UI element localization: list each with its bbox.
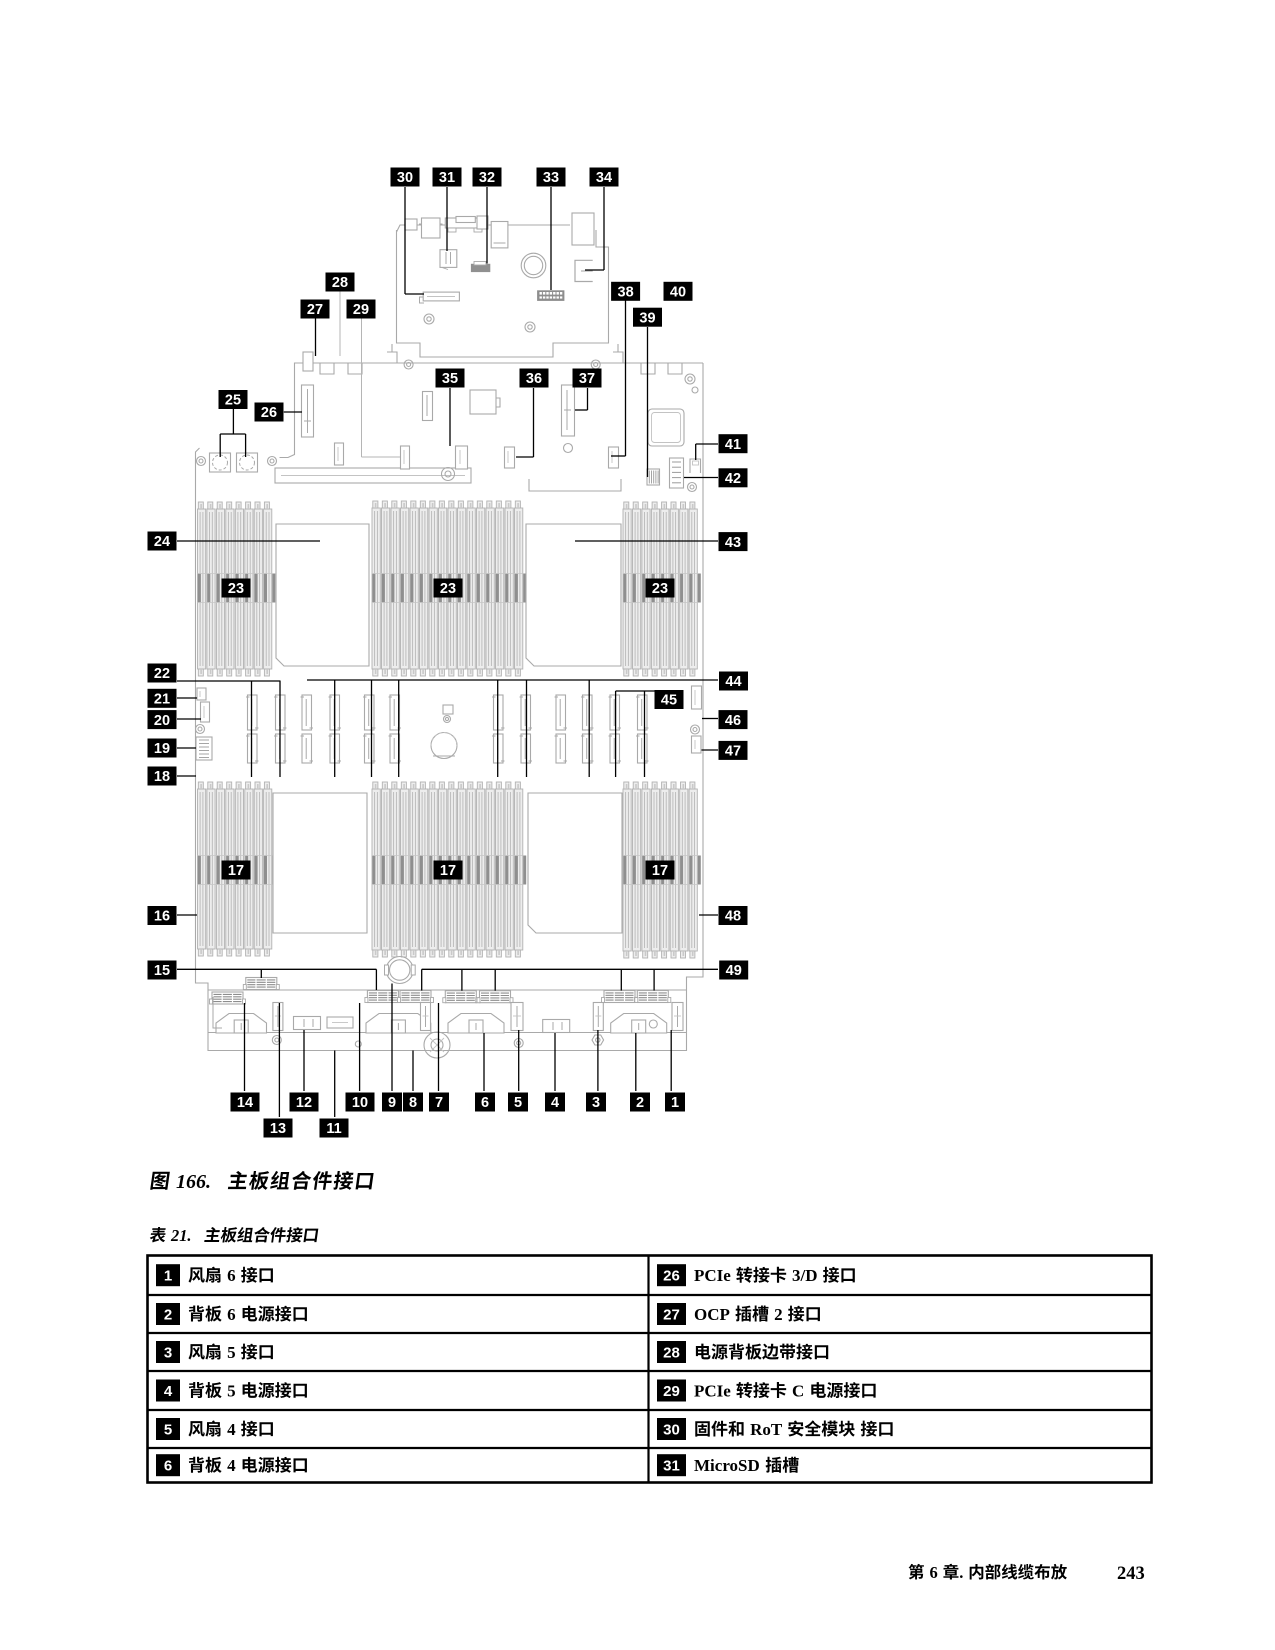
svg-text:4: 4 [227,1420,236,1439]
svg-text:2: 2 [636,1095,644,1111]
svg-text:42: 42 [725,471,741,487]
svg-text:23: 23 [652,581,668,597]
svg-text:1: 1 [671,1095,679,1111]
svg-text:PCIe: PCIe [694,1382,731,1401]
svg-text:4: 4 [227,1456,236,1475]
svg-text:6: 6 [164,1458,172,1475]
svg-text:OCP: OCP [694,1305,730,1324]
svg-text:24: 24 [154,534,170,550]
svg-text:5: 5 [514,1095,522,1111]
svg-text:3/D: 3/D [792,1266,818,1285]
svg-text:166.: 166. [176,1171,211,1193]
svg-text:10: 10 [352,1095,368,1111]
svg-text:49: 49 [726,963,742,979]
svg-text:21: 21 [154,692,170,708]
svg-text:39: 39 [639,310,655,326]
svg-text:6: 6 [930,1563,938,1582]
svg-text:6: 6 [227,1266,236,1285]
svg-text:243: 243 [1117,1564,1145,1584]
svg-text:16: 16 [154,909,170,925]
svg-text:27: 27 [663,1306,680,1323]
svg-text:6: 6 [481,1095,489,1111]
svg-text:37: 37 [579,371,595,387]
svg-text:20: 20 [154,713,170,729]
svg-text:46: 46 [725,713,741,729]
svg-text:30: 30 [397,170,413,186]
svg-text:11: 11 [326,1121,341,1137]
svg-text:23: 23 [228,581,244,597]
svg-text:32: 32 [479,170,495,186]
svg-text:14: 14 [237,1095,253,1111]
svg-text:.: . [959,1563,963,1582]
svg-text:7: 7 [435,1095,443,1111]
svg-text:4: 4 [164,1383,173,1400]
svg-text:5: 5 [227,1343,236,1362]
svg-text:6: 6 [227,1305,236,1324]
svg-text:RoT: RoT [750,1420,783,1439]
svg-text:33: 33 [543,170,559,186]
svg-text:17: 17 [440,863,456,879]
svg-text:MicroSD: MicroSD [694,1456,760,1475]
svg-text:2: 2 [164,1306,172,1323]
svg-text:28: 28 [663,1344,680,1361]
svg-text:9: 9 [388,1095,396,1111]
svg-text:31: 31 [439,170,455,186]
svg-text:25: 25 [225,393,241,409]
svg-text:40: 40 [670,285,686,301]
svg-text:21.: 21. [170,1226,192,1245]
svg-text:34: 34 [596,170,612,186]
svg-text:2: 2 [774,1305,783,1324]
svg-text:45: 45 [661,693,677,709]
svg-text:22: 22 [154,666,170,682]
svg-text:3: 3 [164,1344,172,1361]
svg-text:3: 3 [592,1095,600,1111]
svg-text:18: 18 [154,769,170,785]
svg-text:28: 28 [332,275,348,291]
svg-text:1: 1 [164,1268,172,1285]
svg-text:47: 47 [725,744,741,760]
svg-text:5: 5 [227,1382,236,1401]
svg-text:41: 41 [725,437,741,453]
svg-text:13: 13 [270,1121,286,1137]
svg-text:19: 19 [154,741,170,757]
svg-text:15: 15 [154,963,170,979]
svg-text:23: 23 [440,581,456,597]
svg-text:12: 12 [296,1095,312,1111]
svg-text:8: 8 [409,1095,417,1111]
svg-text:48: 48 [725,909,741,925]
svg-text:29: 29 [663,1383,680,1400]
svg-text:17: 17 [652,863,668,879]
svg-text:43: 43 [725,535,741,551]
svg-text:27: 27 [307,302,323,318]
svg-text:29: 29 [353,302,369,318]
svg-text:36: 36 [526,371,542,387]
svg-text:PCIe: PCIe [694,1266,731,1285]
svg-text:26: 26 [261,405,277,421]
svg-text:30: 30 [663,1421,680,1438]
svg-text:44: 44 [725,674,741,690]
svg-text:35: 35 [442,371,458,387]
svg-text:38: 38 [618,285,634,301]
svg-text:5: 5 [164,1421,172,1438]
svg-text:26: 26 [663,1268,680,1285]
svg-text:C: C [792,1382,804,1401]
svg-text:31: 31 [663,1458,680,1475]
svg-text:17: 17 [228,863,244,879]
svg-text:4: 4 [551,1095,559,1111]
